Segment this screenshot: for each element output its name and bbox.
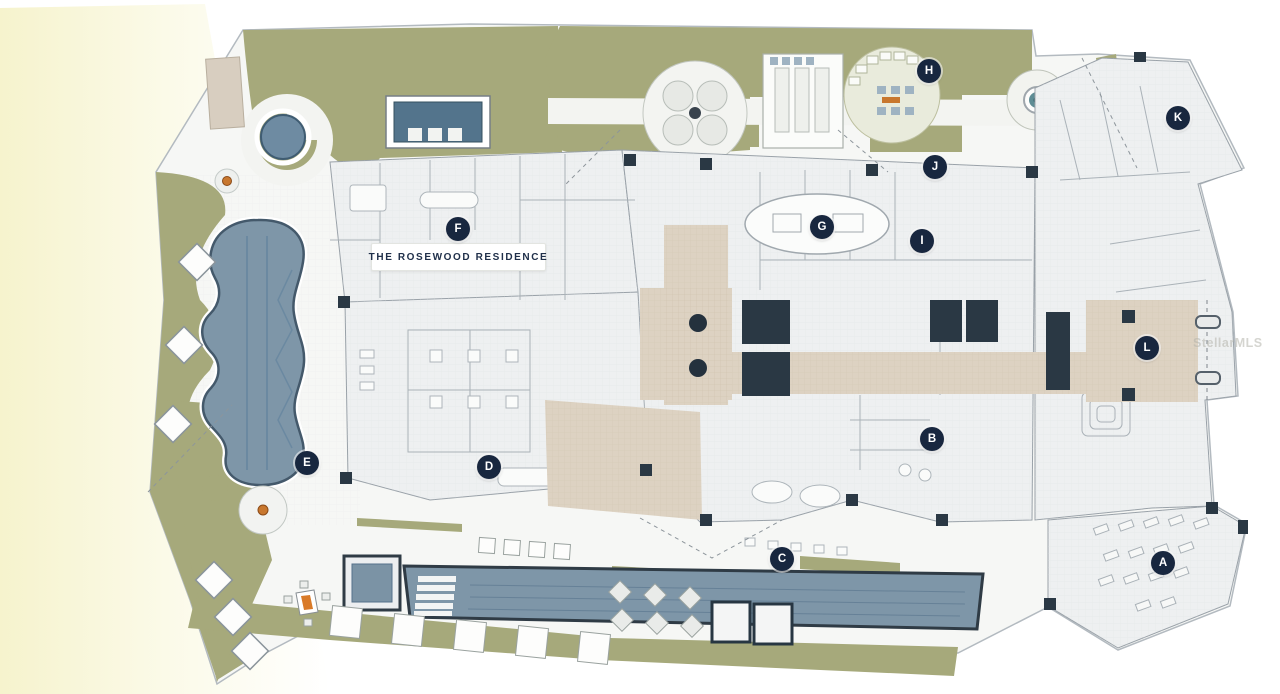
site-plan-drawing <box>0 0 1280 694</box>
amenity-marker-i: I <box>910 229 934 253</box>
spiral-garden-spa <box>241 94 333 186</box>
residence-title-label: THE ROSEWOOD RESIDENCE <box>371 243 546 271</box>
amenity-marker-k: K <box>1166 106 1190 130</box>
amenity-marker-d: D <box>477 455 501 479</box>
quatrefoil-plaza <box>643 61 747 165</box>
floorplan-canvas: THE ROSEWOOD RESIDENCE StellarMLS ABCDEF… <box>0 0 1280 694</box>
amenity-marker-f: F <box>446 217 470 241</box>
amenity-marker-g: G <box>810 215 834 239</box>
amenity-marker-a: A <box>1151 551 1175 575</box>
plunge-pool <box>344 556 400 610</box>
amenity-marker-b: B <box>920 427 944 451</box>
outbuilding <box>206 57 245 129</box>
mls-watermark: StellarMLS <box>1193 336 1263 350</box>
amenity-marker-c: C <box>770 547 794 571</box>
reflecting-pool <box>386 96 490 148</box>
amenity-marker-j: J <box>923 155 947 179</box>
garden-pavilion <box>763 54 843 148</box>
amenity-marker-e: E <box>295 451 319 475</box>
amenity-marker-h: H <box>917 59 941 83</box>
amenity-marker-l: L <box>1135 336 1159 360</box>
